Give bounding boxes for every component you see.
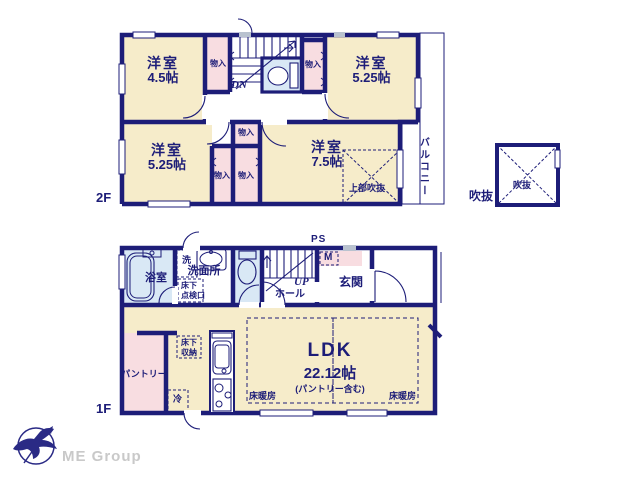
closet-label: 物入 xyxy=(301,60,325,69)
open-above-label: 上部吹抜 xyxy=(349,183,385,193)
room-size: 4.5帖 xyxy=(118,71,208,86)
room-name: 洋室 xyxy=(118,55,208,71)
floor1-label: 1F xyxy=(96,402,111,417)
ldk-size: 22.12帖 xyxy=(255,365,405,382)
ldk-note: (パントリー含む) xyxy=(255,384,405,394)
room-label-2f-ne: 洋室 5.25帖 xyxy=(325,55,418,86)
storage-line2: 収納 xyxy=(181,348,197,358)
wall-marks-1f xyxy=(343,245,356,251)
stairs-up-label: UP xyxy=(294,276,309,289)
closet-label: 物入 xyxy=(210,171,234,180)
kitchen-counter xyxy=(210,331,234,413)
washroom-label: 洗面所 xyxy=(177,265,231,278)
floor-hatch-line2: 点検口 xyxy=(181,291,205,301)
company-logo xyxy=(13,426,57,464)
floor2-plan xyxy=(119,19,560,207)
void-label-inside: 吹抜 xyxy=(513,180,531,190)
room-size: 7.5帖 xyxy=(291,155,363,170)
room-size: 5.25帖 xyxy=(325,71,418,86)
room-name: 洋室 xyxy=(325,55,418,71)
closet-label: 物入 xyxy=(206,59,230,68)
floorplan-page: 洋室 4.5帖 洋室 5.25帖 洋室 5.25帖 洋室 7.5帖 物入 物入 … xyxy=(0,0,640,480)
entrance-label: 玄関 xyxy=(329,276,373,290)
balcony-label: バルコニー xyxy=(417,137,429,197)
room-name: 洋室 xyxy=(291,139,363,155)
room-size: 5.25帖 xyxy=(122,158,212,173)
void-square xyxy=(497,145,560,205)
stairs-down-label: DN xyxy=(231,79,247,92)
underfloor-storage-label: 床下 収納 xyxy=(181,338,197,357)
pantry-label: パントリー xyxy=(121,369,167,379)
storage-line1: 床下 xyxy=(181,338,197,348)
company-name: ME Group xyxy=(62,448,142,465)
void-label-outside: 吹抜 xyxy=(469,190,493,204)
ldk-label: LDK 22.12帖 (パントリー含む) xyxy=(255,340,405,394)
floor-heating-left-label: 床暖房 xyxy=(249,391,276,401)
hall-label: ホール xyxy=(269,289,311,301)
room-label-2f-se: 洋室 7.5帖 xyxy=(291,139,363,170)
fridge-label: 冷 xyxy=(173,394,182,404)
room-label-2f-nw: 洋室 4.5帖 xyxy=(118,55,208,86)
closet-label: 物入 xyxy=(234,128,258,137)
floor2-label: 2F xyxy=(96,191,111,206)
closet-label: 物入 xyxy=(234,171,258,180)
meter-label: M xyxy=(324,252,332,264)
room-label-2f-sw: 洋室 5.25帖 xyxy=(122,142,212,173)
bath-label: 浴室 xyxy=(133,272,179,285)
floor-hatch-line1: 床下 xyxy=(181,281,205,291)
floor-hatch-label: 床下 点検口 xyxy=(181,281,205,300)
floor-heating-right-label: 床暖房 xyxy=(389,391,416,401)
pipe-space-label: PS xyxy=(311,234,326,246)
room-name: 洋室 xyxy=(122,142,212,158)
washer-label: 洗 xyxy=(182,255,191,265)
ldk-name: LDK xyxy=(255,340,405,362)
